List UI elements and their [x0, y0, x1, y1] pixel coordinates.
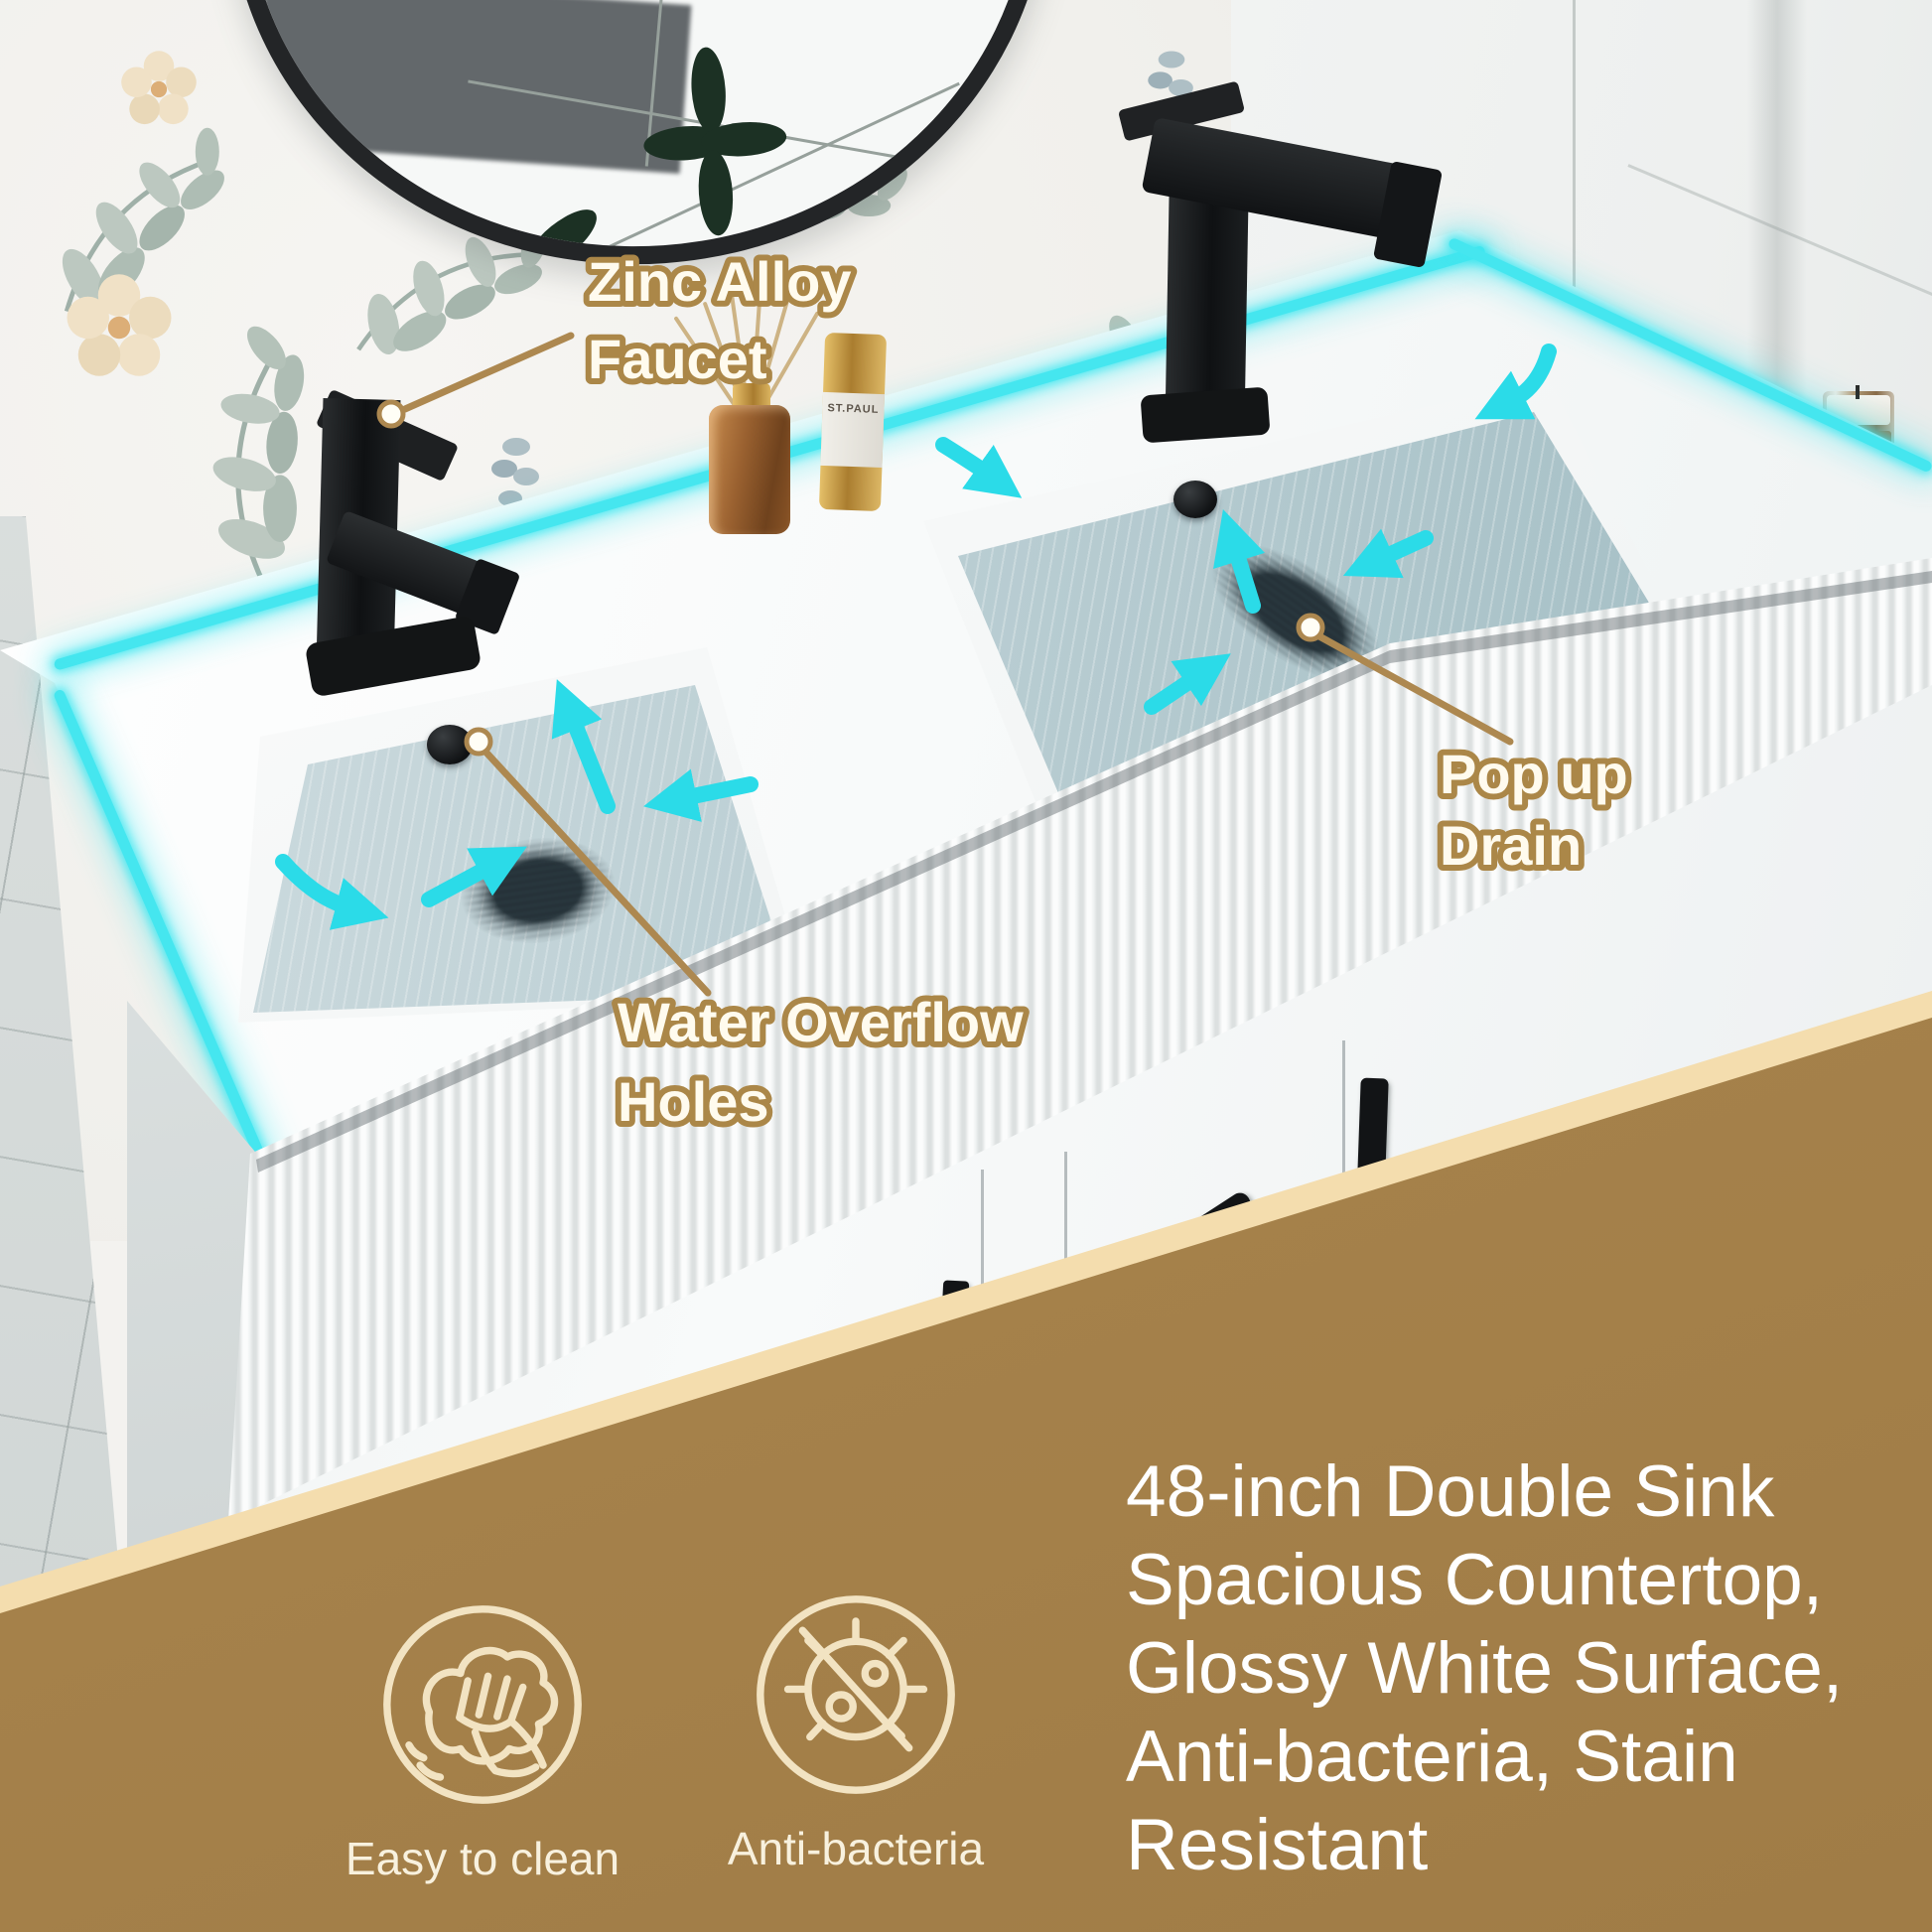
flow-arrow-icon	[572, 717, 608, 806]
drain-callout-line2: Drain	[1440, 814, 1582, 877]
overflow-callout-label: Water Overflow Holes	[618, 991, 1038, 1133]
water-flow-arrows	[283, 351, 1549, 907]
faucet-callout-line	[405, 336, 571, 409]
annotation-overlay: Zinc Alloy Faucet Water Overflow Holes P…	[0, 0, 1932, 1932]
flow-arrow-icon	[1380, 538, 1426, 559]
flow-arrow-icon	[1235, 548, 1253, 606]
drain-callout-dot	[1299, 616, 1322, 639]
faucet-callout-dot	[379, 402, 403, 426]
faucet-callout-line1: Zinc Alloy	[588, 250, 852, 313]
drain-callout-line1: Pop up	[1440, 743, 1628, 805]
vanity-product-infographic: ST.PAUL 48-inch Double Sink Spacious Cou…	[0, 0, 1932, 1932]
drain-callout-line	[1319, 636, 1510, 742]
faucet-callout-line2: Faucet	[588, 328, 767, 390]
overflow-callout-line2: Holes	[618, 1070, 769, 1133]
drain-callout-label: Pop up Drain	[1440, 743, 1643, 877]
overflow-callout-dot	[467, 730, 490, 754]
flow-arrow-icon	[429, 866, 491, 899]
flow-arrow-icon	[283, 862, 349, 907]
flow-arrow-icon	[1511, 351, 1549, 401]
flow-arrow-icon	[943, 445, 989, 475]
flow-arrow-icon	[1152, 676, 1197, 707]
overflow-callout-line1: Water Overflow	[618, 991, 1024, 1053]
flow-arrow-icon	[683, 784, 751, 798]
faucet-callout-label: Zinc Alloy Faucet	[588, 250, 867, 390]
